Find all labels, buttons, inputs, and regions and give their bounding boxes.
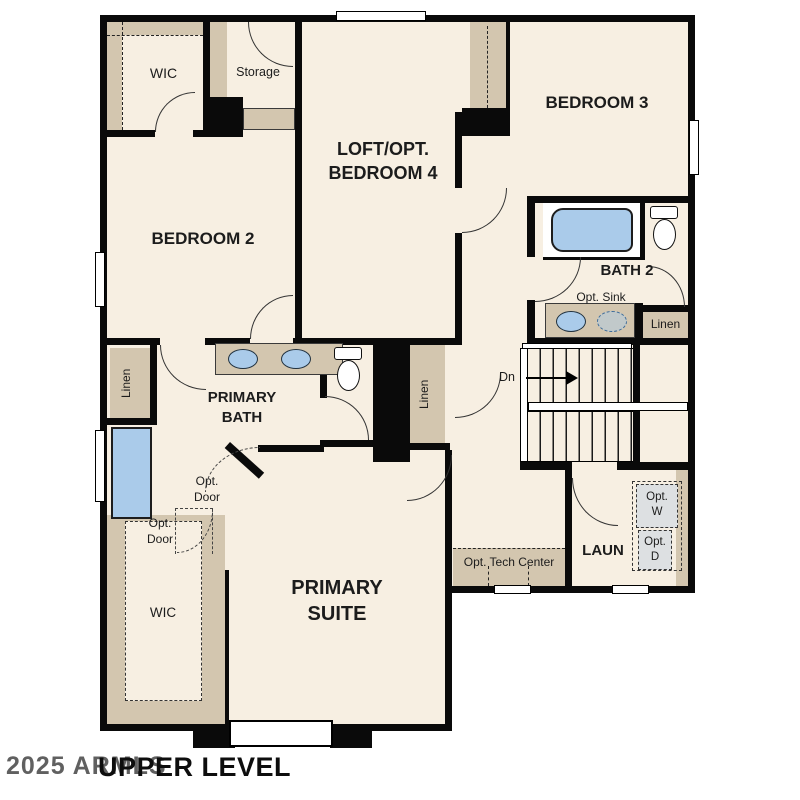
wall [527,196,695,203]
toilet-primary-tank [334,347,362,360]
wall [100,15,107,731]
sink-primary-bath [228,349,258,369]
opt-door-line2: Door [194,490,220,504]
sink-primary-bath [281,349,311,369]
room-label-storage: Storage [228,64,288,81]
window-loft-top [336,11,426,21]
wall [520,462,572,470]
toilet-primary-bowl [337,360,360,391]
room-label-primary-suite: PRIMARY SUITE [257,575,417,628]
stair-landing [528,402,688,411]
page-title: UPPER LEVEL [98,750,398,786]
opt-door-line1: Opt. [149,516,172,530]
room-label-bath2: BATH 2 [577,261,677,281]
label-linen-left: Linen [119,350,139,416]
stairs-lower-run [528,411,633,462]
storage-shelf [210,22,227,108]
label-opt-door-upper: Opt. Door [178,474,236,506]
toilet-bath2-bowl [653,219,676,250]
label-linen-hall: Linen [417,358,437,430]
wall [107,338,160,345]
optional-sink-bath2 [597,311,627,332]
floor-plan: WIC Storage BEDROOM 2 LOFT/OPT. BEDROOM … [0,0,800,800]
primary-bath-line1: PRIMARY [208,389,277,406]
label-opt-dryer: Opt. D [634,535,676,565]
opt-washer-line2: W [652,506,663,518]
primary-bath-line2: BATH [222,409,263,426]
wall [617,462,695,470]
opt-door-line1: Opt. [196,474,219,488]
wall [295,22,302,345]
down-arrow-line [526,377,568,379]
window-laundry-bottom [612,585,649,594]
bathtub-bath2 [551,208,633,252]
room-label-bedroom2: BEDROOM 2 [123,228,283,250]
bay-window-flank [330,724,372,748]
primary-suite-line1: PRIMARY [291,577,382,599]
bedroom3-closet-rod [487,26,488,108]
sink-bath2 [556,311,586,332]
storage-cabinet [243,108,295,130]
window-bedroom3-right [689,120,699,175]
label-opt-washer: Opt. W [636,490,678,520]
opt-door-line2: Door [147,532,173,546]
opt-dryer-line1: Opt. [644,536,666,548]
toilet-bath2-tank [650,206,678,219]
stairs-upper-run [528,348,633,403]
wall [455,233,462,345]
room-label-primary-bath: PRIMARY BATH [182,388,302,428]
room-label-wic-upper: WIC [136,64,191,82]
wall [445,586,695,593]
shower-primary-bath [111,427,152,519]
window-hall-bottom [494,585,531,594]
wall [445,586,452,731]
room-label-loft: LOFT/OPT. BEDROOM 4 [303,138,463,186]
window-primary-suite-bay [229,720,333,747]
opt-dryer-line2: D [651,551,659,563]
wall [107,130,155,137]
wall [150,345,157,420]
down-arrow-head [566,371,578,385]
loft-line1: LOFT/OPT. [337,139,429,159]
label-linen-bath2: Linen [643,317,688,333]
label-opt-sink: Opt. Sink [551,290,651,306]
primary-suite-line2: SUITE [308,603,367,625]
room-label-wic-lower: WIC [133,604,193,622]
stair-stringer [520,348,528,462]
label-down: Dn [494,369,520,386]
label-opt-door-lower: Opt. Door [130,516,190,548]
window-bedroom2-left [95,252,105,307]
wic-upper-shelf-left [107,22,122,130]
wic-upper-rod-line2 [122,22,123,130]
wall [258,445,324,452]
wall [688,15,695,593]
bedroom3-closet [470,22,506,110]
wall [405,443,450,450]
opt-washer-line1: Opt. [646,491,668,503]
window-primary-bath-left [95,430,105,502]
loft-line2: BEDROOM 4 [328,163,437,183]
room-label-laundry: LAUN [563,541,643,561]
wall [410,338,455,345]
label-tech-center: Opt. Tech Center [450,555,568,571]
wall [107,418,157,425]
wall [320,440,380,447]
wall [203,97,243,137]
room-label-bedroom3: BEDROOM 3 [517,92,677,114]
wall [462,108,510,136]
wall [527,203,535,257]
wall [506,22,510,110]
